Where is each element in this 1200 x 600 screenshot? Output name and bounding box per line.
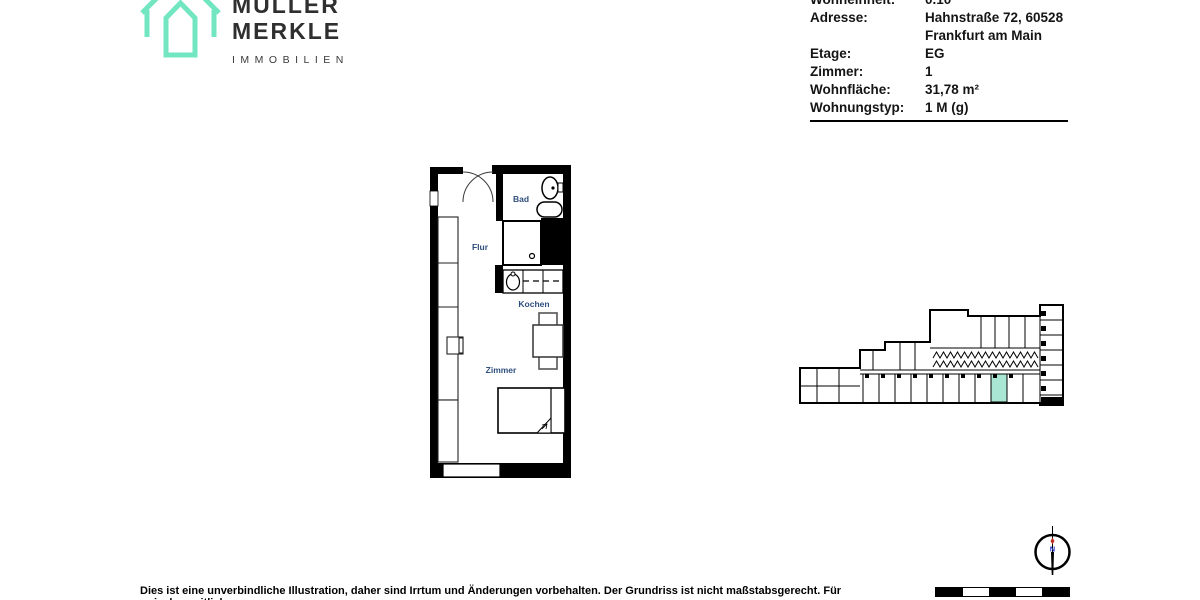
logo-line2: MERKLE — [232, 18, 349, 44]
window — [443, 464, 500, 477]
info-label: Wohnfläche: — [810, 81, 925, 99]
wardrobe — [438, 217, 463, 462]
info-row-wohnungstyp: Wohnungstyp: 1 M (g) — [810, 99, 1068, 117]
shower — [503, 221, 541, 265]
toilet — [537, 202, 562, 217]
dining-table — [533, 325, 563, 357]
info-row-wohnflaeche: Wohnfläche: 31,78 m² — [810, 81, 1068, 99]
address-line1: Hahnstraße 72, 60528 — [925, 9, 1068, 27]
kitchen-counter — [503, 270, 563, 293]
info-row-etage: Etage: EG — [810, 45, 1068, 63]
compass-icon: N — [1031, 523, 1075, 579]
logo-wordmark: MÜLLER MERKLE IMMOBILIEN — [232, 0, 349, 73]
info-value: Hahnstraße 72, 60528 Frankfurt am Main — [925, 9, 1068, 45]
bath-sink-fitting — [558, 183, 563, 192]
table-bottom-rule — [810, 120, 1068, 122]
info-row-wohneinheit: Wohneinheit: 0.10 — [810, 0, 1068, 9]
room-label-zimmer: Zimmer — [486, 365, 517, 375]
info-label: Wohneinheit: — [810, 0, 925, 9]
compass-needle-tip — [1051, 538, 1055, 545]
info-row-adresse: Adresse: Hahnstraße 72, 60528 Frankfurt … — [810, 9, 1068, 45]
info-value: 31,78 m² — [925, 81, 1068, 99]
info-value: 1 M (g) — [925, 99, 1068, 117]
unit-info-table: Wohneinheit: 0.10 Adresse: Hahnstraße 72… — [810, 0, 1068, 122]
room-label-kochen: Kochen — [518, 299, 549, 309]
dining-set — [533, 313, 563, 369]
unit-highlight — [991, 374, 1007, 402]
room-label-flur: Flur — [472, 242, 489, 252]
scale-bar — [935, 587, 1070, 597]
wall-niche — [430, 191, 438, 206]
apartment-floor-plan: Bad Flur Kochen Zimmer — [425, 155, 575, 485]
compass-north-label: N — [1050, 545, 1055, 554]
info-value: 0.10 — [925, 0, 1068, 9]
info-value: EG — [925, 45, 1068, 63]
kitchen-tap — [511, 272, 515, 276]
info-label: Adresse: — [810, 9, 925, 45]
info-row-zimmer: Zimmer: 1 — [810, 63, 1068, 81]
shower-drain — [530, 254, 535, 259]
disclaimer-text: Dies ist eine unverbindliche Illustratio… — [140, 585, 880, 600]
entrance-base — [1041, 397, 1063, 405]
info-value: 1 — [925, 63, 1068, 81]
info-label: Etage: — [810, 45, 925, 63]
room-label-bad: Bad — [513, 194, 529, 204]
info-label: Zimmer: — [810, 63, 925, 81]
building-site-plan — [795, 300, 1070, 412]
entrance-door-arc — [463, 172, 493, 202]
bath-sink-tap — [551, 186, 554, 189]
address-line2: Frankfurt am Main — [925, 27, 1068, 45]
logo-subline: IMMOBILIEN — [232, 47, 349, 73]
expose-page: MÜLLER MERKLE IMMOBILIEN Wohneinheit: 0.… — [0, 0, 1200, 600]
logo-house-icon — [138, 0, 223, 60]
logo-line1: MÜLLER — [232, 0, 349, 18]
info-label: Wohnungstyp: — [810, 99, 925, 117]
bed — [498, 388, 565, 433]
bath-sink — [542, 177, 558, 199]
